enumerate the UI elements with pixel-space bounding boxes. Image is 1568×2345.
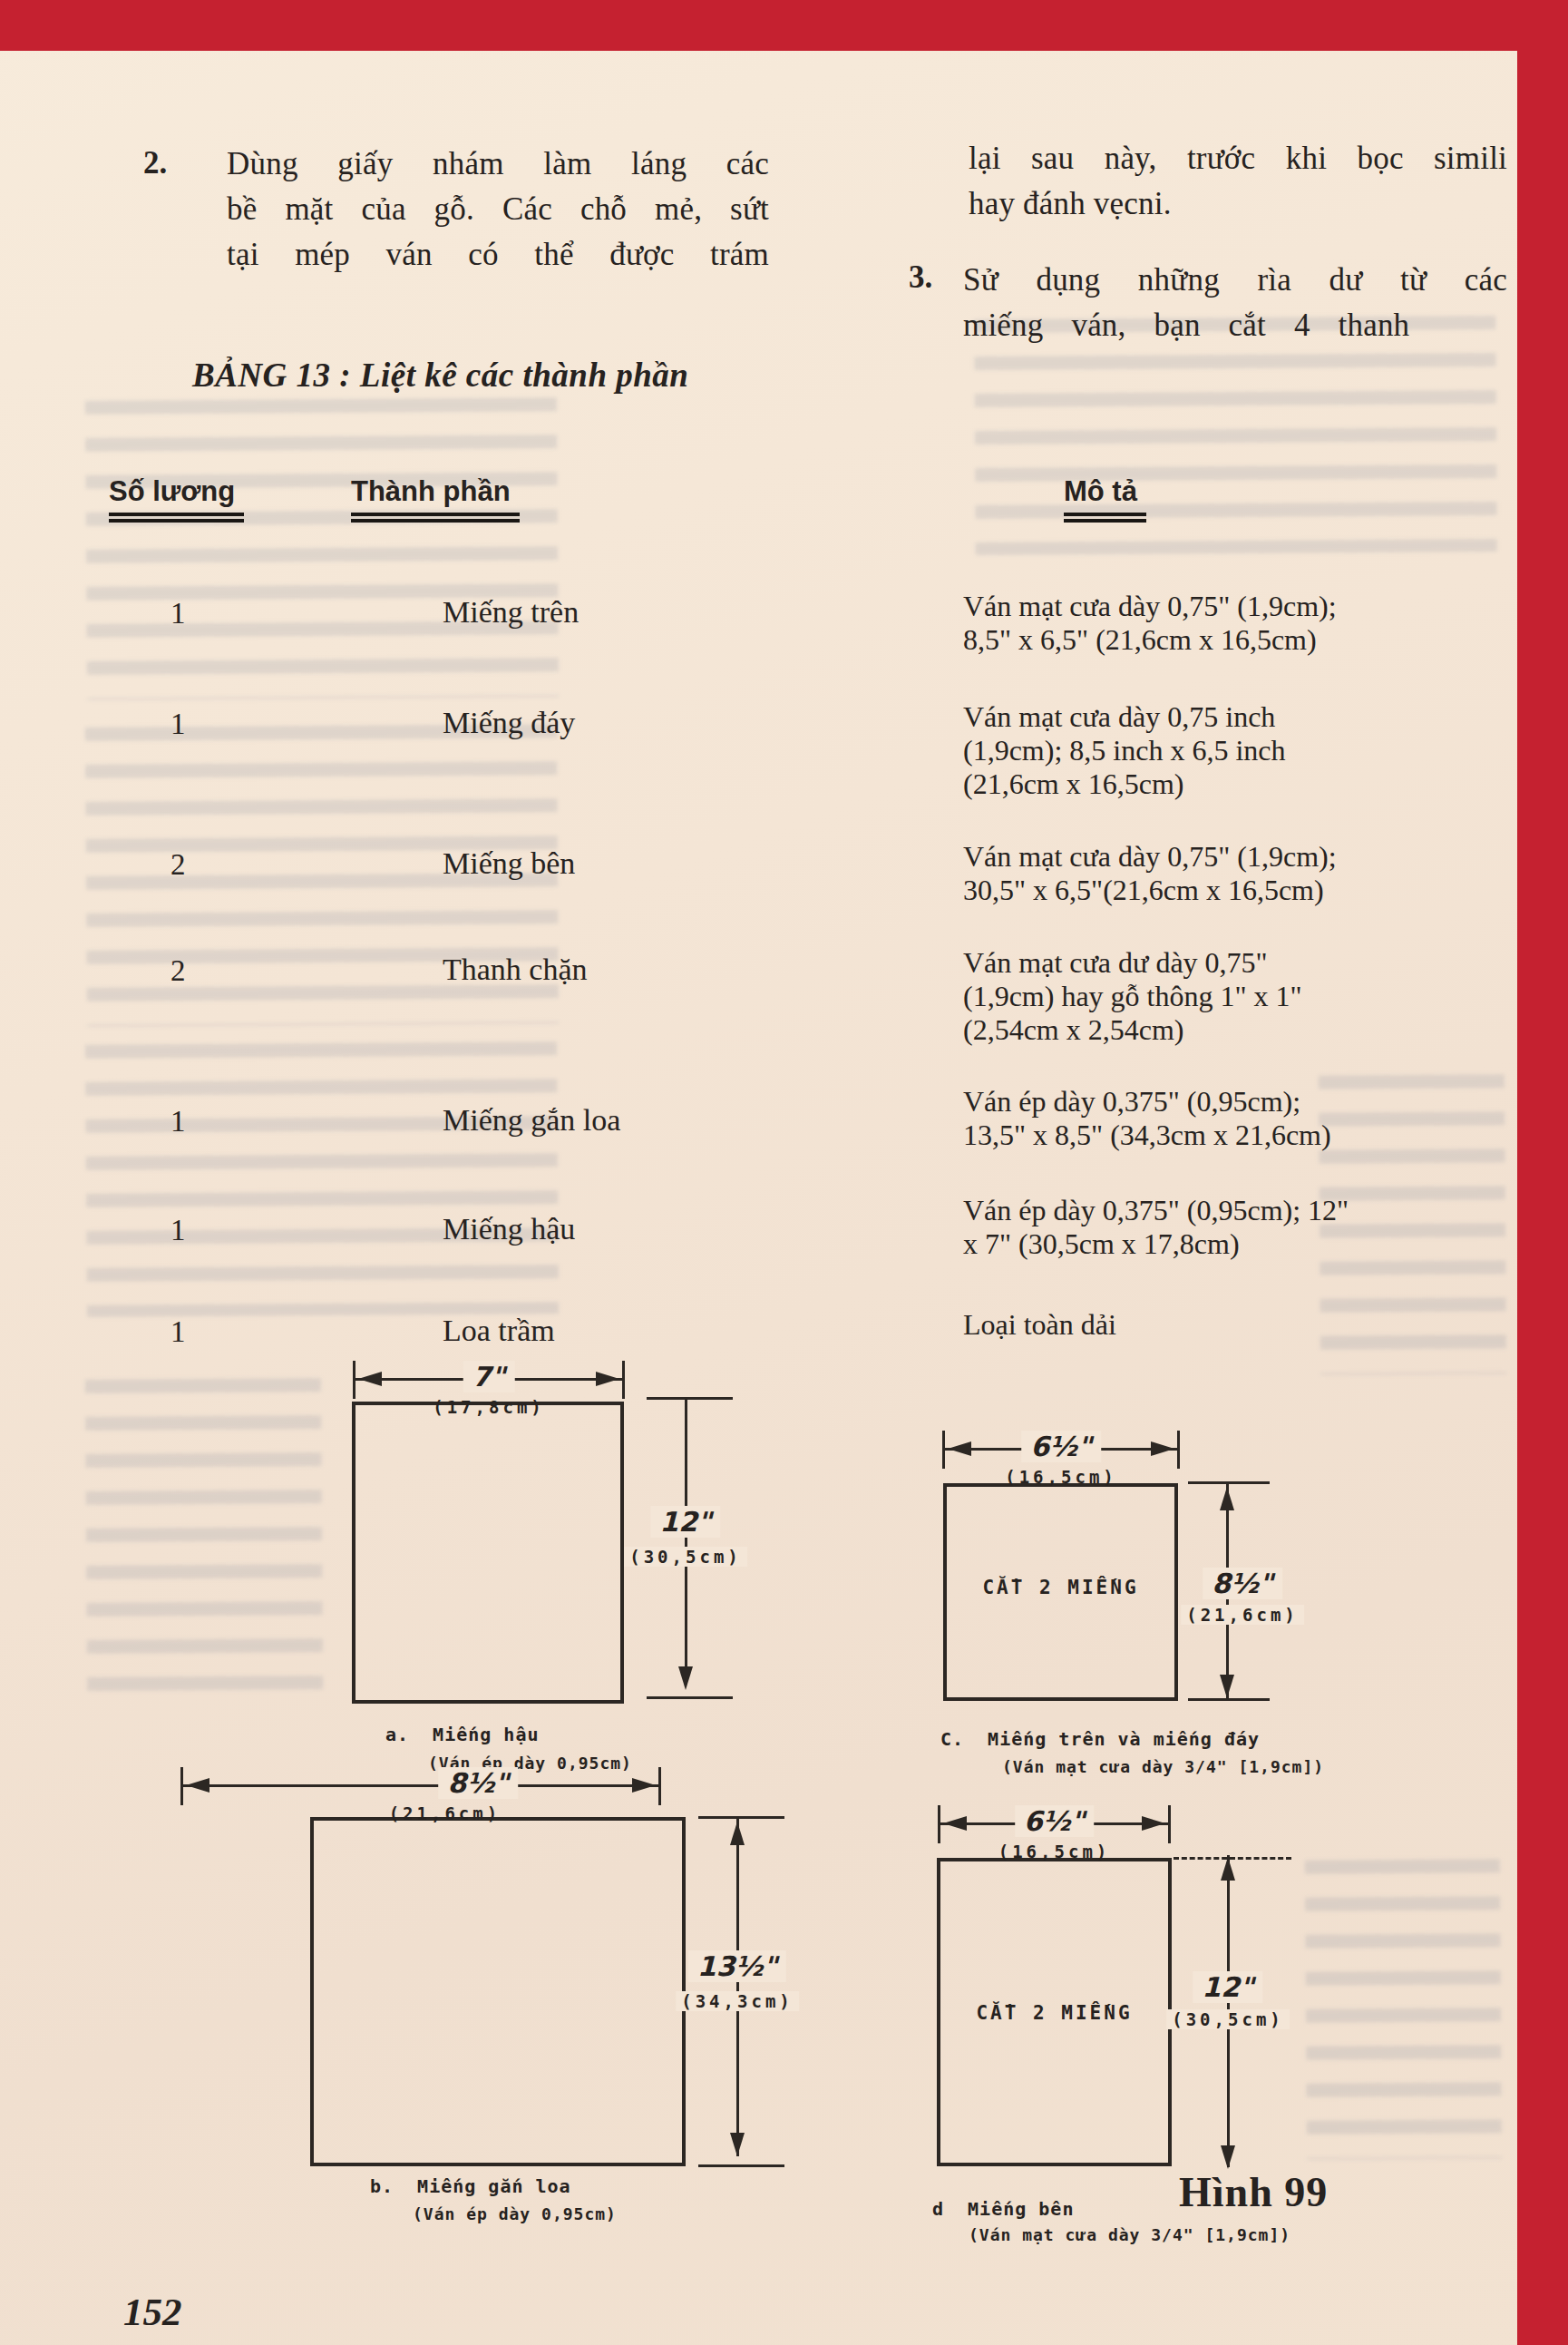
dimension-cm: (30,5cm): [1166, 2009, 1290, 2029]
row-description: Loại toàn dải: [963, 1308, 1518, 1342]
page-edge-top: [0, 0, 1568, 51]
dimension-inches: 6½": [1015, 1805, 1095, 1837]
figure-caption: Hình 99: [1179, 2168, 1328, 2216]
arrowhead-up-icon: [730, 1822, 745, 1845]
height-dimension: 12" (30,5cm): [647, 1397, 737, 1710]
arrowhead-left-icon: [186, 1778, 209, 1793]
bleedthrough-smudge: [85, 1041, 559, 1317]
diagram-material: (Ván ép dày 0,95cm): [413, 2204, 617, 2223]
panel-outline: [310, 1817, 686, 2166]
row-component: Loa trầm: [443, 1314, 555, 1348]
bleedthrough-smudge: [974, 316, 1497, 555]
dimension-inches: 8½": [1203, 1568, 1282, 1599]
arrowhead-up-icon: [1221, 1857, 1235, 1881]
paragraph-line: Dùng giấy nhám làm láng các: [227, 143, 769, 185]
row-component: Miếng trên: [443, 595, 579, 630]
diagram-letter: d: [932, 2198, 944, 2220]
bleedthrough-smudge: [85, 397, 559, 700]
row-quantity: 1: [170, 708, 186, 741]
dimension-cm: (16,5cm): [993, 1842, 1116, 1861]
paragraph-line: miếng ván, bạn cắt 4 thanh: [963, 305, 1507, 347]
row-description: Ván ép dày 0,375" (0,95cm); 13,5" x 8,5"…: [963, 1085, 1518, 1152]
arrowhead-down-icon: [730, 2133, 745, 2156]
dimension-cm: (21,6cm): [384, 1803, 507, 1823]
scanned-book-page: 2. Dùng giấy nhám làm láng các bề mặt củ…: [0, 0, 1568, 2345]
height-dimension: 8½" (21,6cm): [1188, 1481, 1279, 1708]
row-component: Miếng gắn loa: [443, 1103, 620, 1138]
row-component: Miếng bên: [443, 846, 575, 881]
row-component: Miếng đáy: [443, 706, 575, 740]
row-description: Ván mạt cưa dày 0,75" (1,9cm); 8,5" x 6,…: [963, 590, 1518, 657]
diagram-letter: b.: [370, 2175, 394, 2197]
arrowhead-right-icon: [1151, 1441, 1174, 1456]
diagram-letter: C.: [940, 1728, 964, 1750]
arrowhead-right-icon: [596, 1372, 619, 1386]
dimension-cm: (16,5cm): [999, 1467, 1123, 1487]
height-dimension: 13½" (34,3cm): [698, 1816, 789, 2179]
cut-two-pieces-note: CẮT 2 MIẾNG: [943, 1577, 1178, 1598]
list-item-number-2: 2.: [143, 145, 167, 181]
diagram-caption: dMiếng bên: [932, 2198, 1074, 2220]
dimension-inches: 13½": [688, 1950, 786, 1982]
diagram-side-pieces: 6½" (16,5cm) CẮT 2 MIẾNG 12" (30,5cm) dM…: [916, 1801, 1424, 2259]
paragraph-line: bề mặt của gỗ. Các chỗ mẻ, sứt: [227, 189, 769, 230]
paragraph-line: tại mép ván có thể được trám: [227, 234, 769, 276]
row-quantity: 1: [170, 597, 186, 630]
dimension-inches: 8½": [439, 1767, 519, 1799]
arrowhead-up-icon: [1220, 1487, 1234, 1510]
diagram-letter: a.: [385, 1724, 409, 1745]
diagram-material: (Ván mạt cưa dày 3/4" [1,9cm]): [1002, 1757, 1324, 1776]
row-quantity: 1: [170, 1105, 186, 1138]
diagram-caption: b.Miếng gắn loa: [370, 2175, 571, 2197]
row-quantity: 2: [170, 954, 186, 988]
dimension-cm: (17,8cm): [427, 1397, 550, 1417]
table-title: BẢNG 13 : Liệt kê các thành phần: [192, 356, 688, 395]
column-header-quantity: Số lương: [109, 475, 244, 523]
dimension-inches: 12": [1193, 1971, 1262, 2003]
bleedthrough-smudge: [85, 1378, 323, 1697]
row-component: Miếng hậu: [443, 1212, 575, 1246]
arrowhead-left-icon: [948, 1441, 971, 1456]
panel-outline: [352, 1402, 624, 1704]
diagram-part-name: Miếng bên: [968, 2198, 1074, 2220]
diagram-caption: a.Miếng hậu: [385, 1724, 539, 1745]
diagram-part-name: Miếng gắn loa: [417, 2175, 571, 2197]
diagram-top-bottom-pieces: 6½" (16,5cm) CẮT 2 MIẾNG 8½" (21,6cm) C.…: [925, 1420, 1378, 1801]
page-number: 152: [123, 2290, 182, 2334]
diagram-back-piece: 7" (17,8cm) 12" (30,5cm) a.Miếng hậu (Vá…: [345, 1347, 839, 1783]
arrowhead-right-icon: [1142, 1816, 1165, 1831]
row-quantity: 2: [170, 848, 186, 882]
dimension-cm: (34,3cm): [676, 1991, 799, 2011]
row-quantity: 1: [170, 1214, 186, 1247]
row-component: Thanh chặn: [443, 953, 588, 987]
dimension-inches: 7": [463, 1361, 515, 1392]
paragraph-line: lại sau này, trước khi bọc simili: [969, 138, 1507, 180]
column-header-description: Mô tả: [1064, 475, 1146, 523]
row-description: Ván ép dày 0,375" (0,95cm); 12" x 7" (30…: [963, 1194, 1518, 1261]
diagram-caption: C.Miếng trên và miếng đáy: [940, 1728, 1260, 1750]
page-edge-right: [1517, 0, 1568, 2345]
arrowhead-left-icon: [358, 1372, 382, 1386]
diagram-part-name: Miếng trên và miếng đáy: [988, 1728, 1260, 1750]
arrowhead-down-icon: [678, 1666, 693, 1690]
arrowhead-right-icon: [632, 1778, 656, 1793]
dimension-cm: (21,6cm): [1181, 1605, 1304, 1625]
cut-two-pieces-note: CẮT 2 MIẾNG: [937, 2002, 1172, 2024]
list-item-number-3: 3.: [909, 259, 932, 296]
diagram-material: (Ván mạt cưa dày 3/4" [1,9cm]): [969, 2225, 1290, 2244]
arrowhead-down-icon: [1220, 1675, 1234, 1698]
column-header-component: Thành phần: [351, 475, 520, 523]
arrowhead-left-icon: [943, 1816, 967, 1831]
width-dimension: 8½" (21,6cm): [181, 1767, 660, 1823]
dimension-cm: (30,5cm): [624, 1547, 747, 1567]
row-description: Ván mạt cưa dày 0,75" (1,9cm); 30,5" x 6…: [963, 840, 1518, 907]
diagram-speaker-mount-piece: 8½" (21,6cm) 13½" (34,3cm) b.Miếng gắn l…: [163, 1760, 839, 2268]
row-description: Ván mạt cưa dày 0,75 inch (1,9cm); 8,5 i…: [963, 700, 1518, 801]
dimension-inches: 12": [650, 1506, 720, 1538]
width-dimension: 6½" (16,5cm): [943, 1431, 1179, 1487]
arrowhead-down-icon: [1221, 2145, 1235, 2169]
dimension-inches: 6½": [1021, 1431, 1101, 1462]
height-dimension: 12" (30,5cm): [1188, 1855, 1279, 2218]
row-description: Ván mạt cưa dư dày 0,75" (1,9cm) hay gỗ …: [963, 946, 1518, 1047]
diagram-part-name: Miếng hậu: [433, 1724, 539, 1745]
paragraph-line: Sử dụng những rìa dư từ các: [963, 259, 1507, 301]
width-dimension: 6½" (16,5cm): [939, 1805, 1170, 1861]
row-quantity: 1: [170, 1315, 186, 1349]
paragraph-line: hay đánh vẹcni.: [969, 183, 1507, 225]
